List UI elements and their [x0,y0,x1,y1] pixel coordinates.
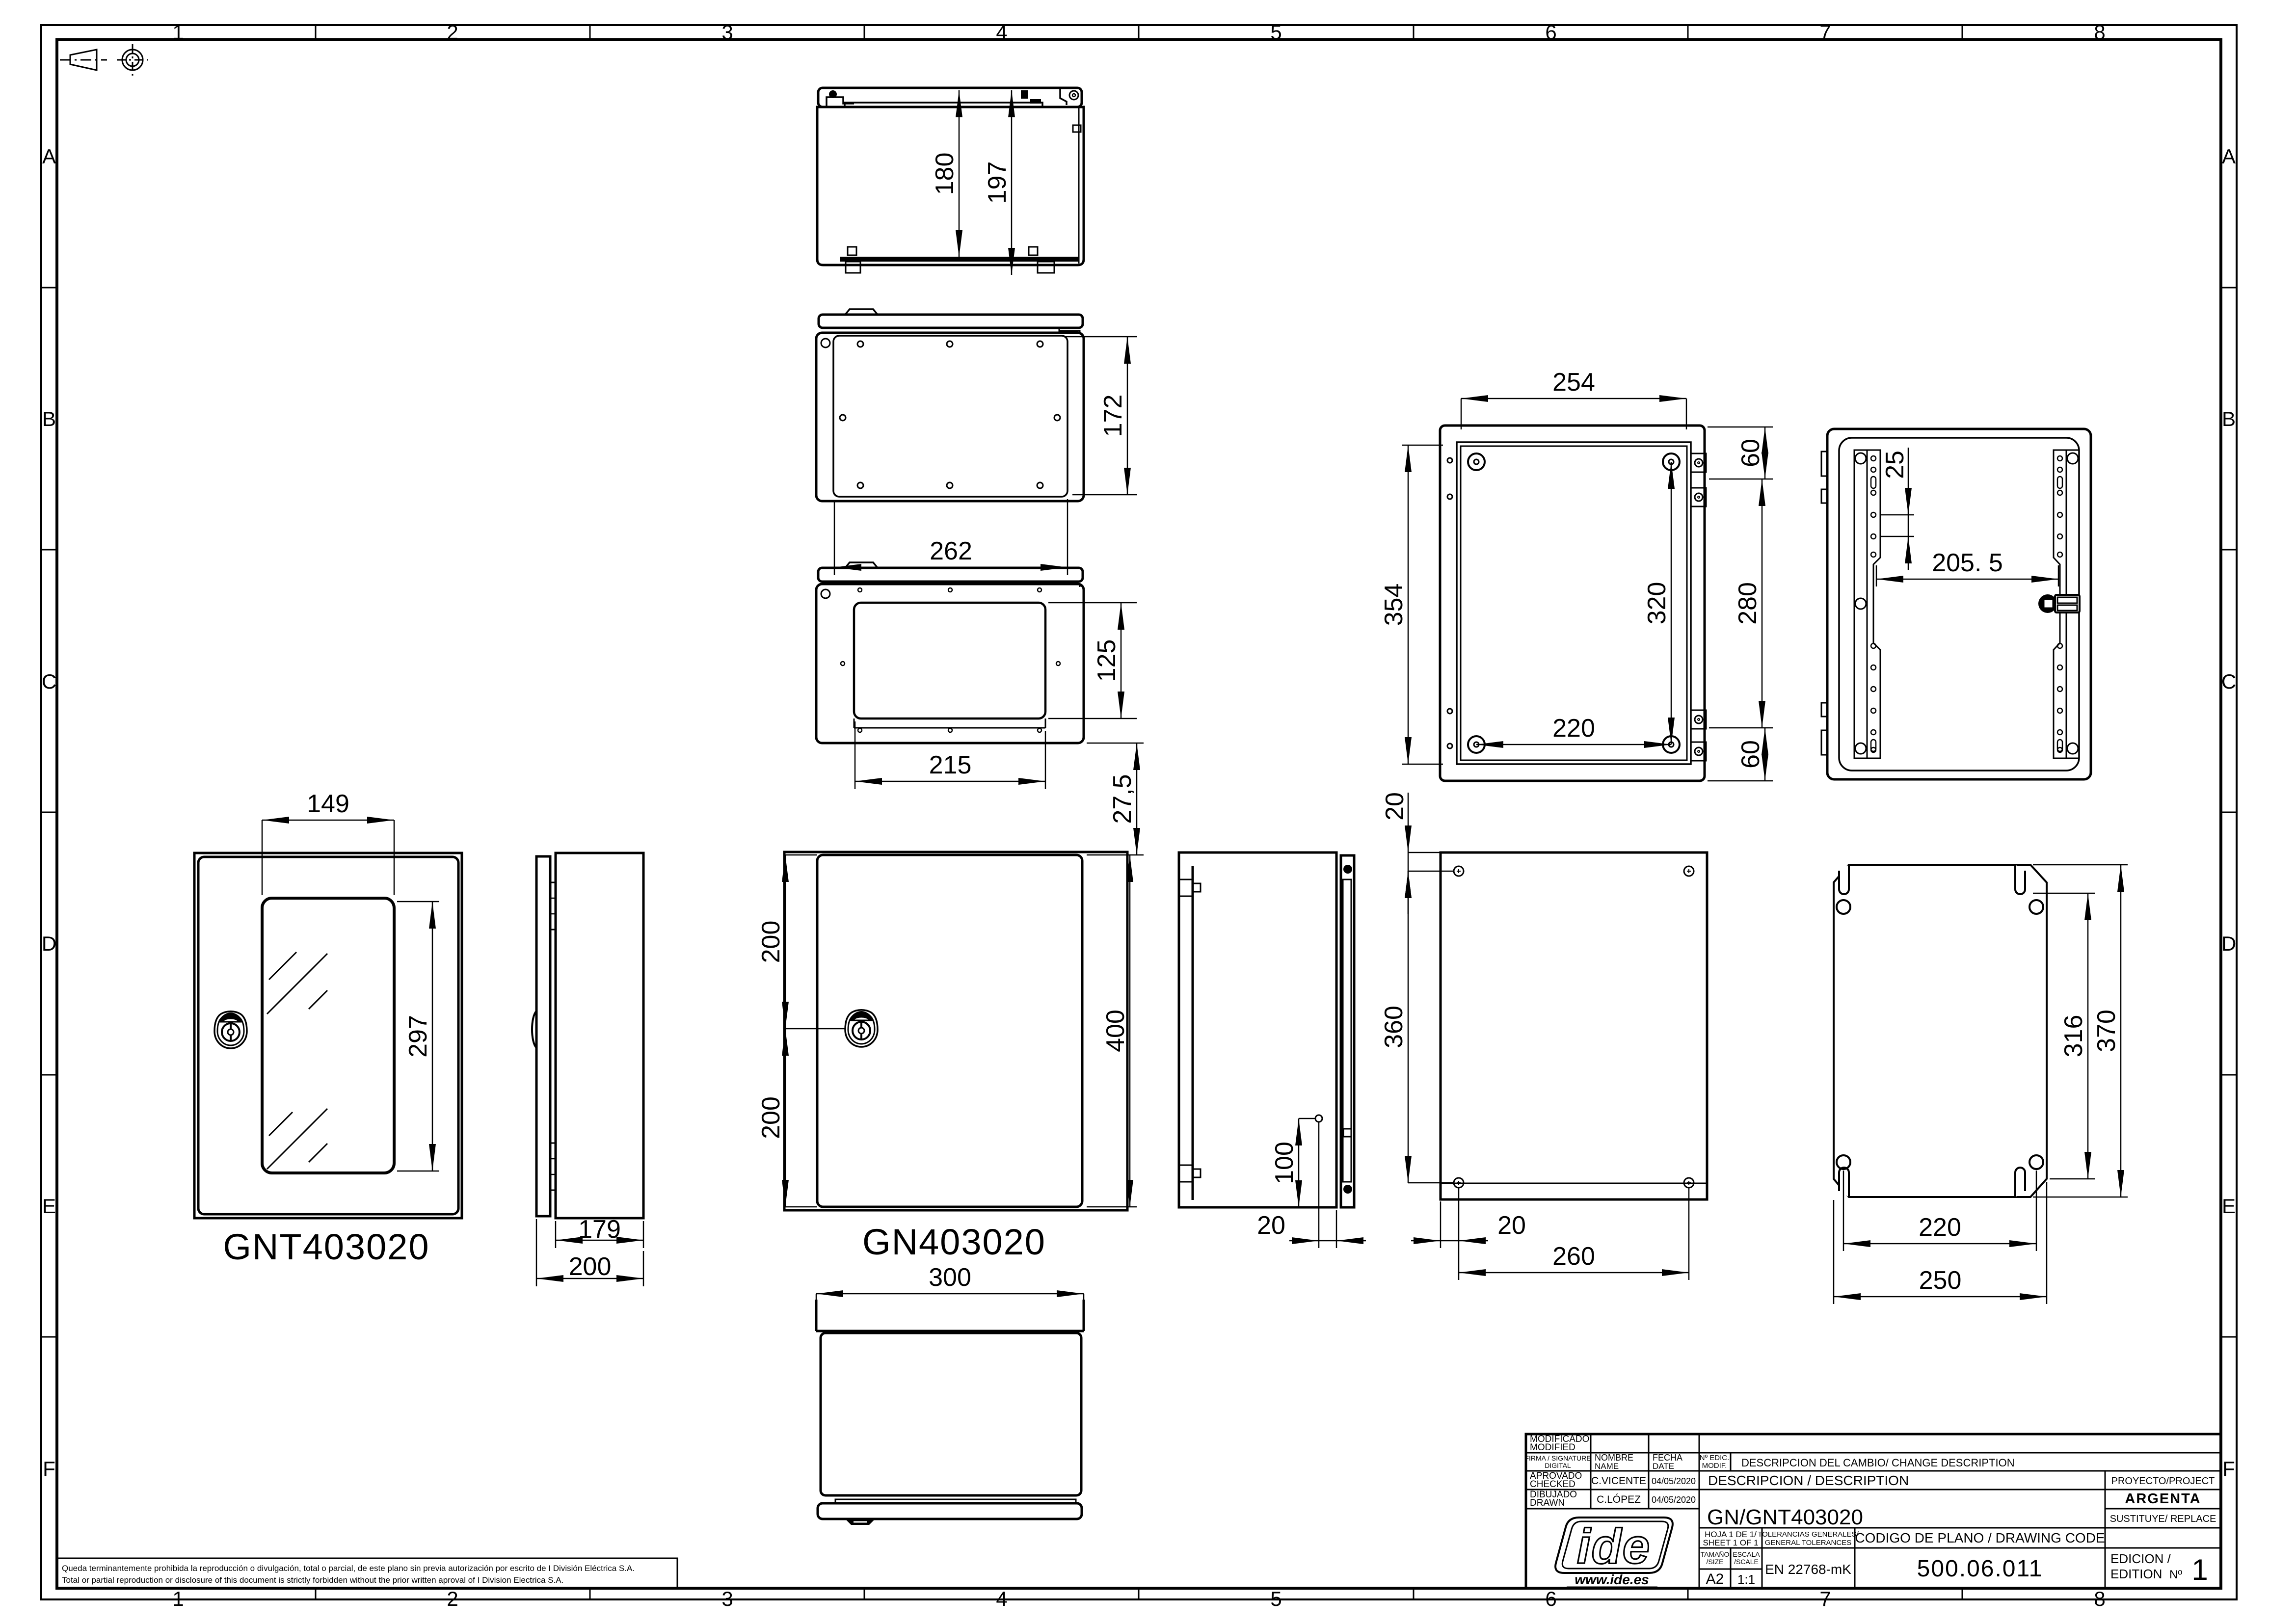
svg-text:TAMAÑO: TAMAÑO [1701,1550,1730,1558]
svg-text:F: F [43,1457,55,1480]
svg-text:www.ide.es: www.ide.es [1575,1572,1649,1587]
svg-text:60: 60 [1736,740,1765,769]
svg-text:200: 200 [757,921,785,963]
svg-text:C.VICENTE: C.VICENTE [1591,1475,1646,1487]
svg-text:DATE: DATE [1653,1462,1674,1471]
svg-text:60: 60 [1736,439,1765,467]
svg-text:100: 100 [1270,1142,1299,1184]
svg-text:MODIF.: MODIF. [1702,1462,1727,1470]
svg-text:250: 250 [1919,1266,1962,1295]
svg-text:3: 3 [721,1587,733,1610]
svg-text:7: 7 [1819,1587,1831,1610]
svg-text:GN403020: GN403020 [862,1222,1046,1262]
svg-text:200: 200 [569,1252,612,1281]
svg-text:DESCRIPCION DEL CAMBIO/ CHANG: DESCRIPCION DEL CAMBIO/ CHANGE DESCRIPTI… [1741,1457,2015,1469]
svg-text:197: 197 [983,161,1012,204]
svg-text:FIRMA / SIGNATURE: FIRMA / SIGNATURE [1524,1454,1591,1462]
svg-text:215: 215 [929,751,972,779]
svg-text:400: 400 [1101,1010,1130,1052]
svg-text:TOLERANCIAS GENERALES/: TOLERANCIAS GENERALES/ [1758,1530,1859,1539]
svg-text:B: B [42,407,56,430]
svg-text:GN/GNT403020: GN/GNT403020 [1707,1505,1863,1529]
svg-text:A: A [2222,145,2236,168]
svg-text:360: 360 [1380,1006,1408,1048]
svg-text:200: 200 [757,1096,785,1139]
svg-text:FECHA: FECHA [1653,1453,1682,1463]
svg-text:20: 20 [1497,1211,1526,1240]
svg-text:179: 179 [578,1215,621,1244]
svg-text:220: 220 [1919,1213,1961,1242]
svg-text:B: B [2222,407,2236,430]
svg-text:297: 297 [404,1015,432,1058]
svg-text:1: 1 [2191,1553,2208,1586]
svg-text:220: 220 [1552,714,1595,743]
svg-text:262: 262 [930,537,972,565]
svg-text:20: 20 [1381,792,1409,821]
svg-text:Nº: Nº [2169,1568,2182,1581]
svg-text:PROYECTO/PROJECT: PROYECTO/PROJECT [2111,1476,2215,1487]
svg-text:6: 6 [1545,21,1556,44]
svg-text:ide: ide [1577,1519,1651,1574]
svg-text:F: F [2222,1457,2235,1480]
svg-text:1: 1 [172,21,184,44]
svg-text:D: D [42,932,56,955]
svg-text:25: 25 [1881,451,1909,479]
svg-text:DESCRIPCION / DESCRIPTION: DESCRIPCION / DESCRIPTION [1708,1473,1909,1488]
svg-text:300: 300 [929,1263,971,1292]
svg-text:180: 180 [931,153,959,195]
svg-text:4: 4 [996,21,1007,44]
svg-text:EN 22768-mK: EN 22768-mK [1765,1562,1851,1577]
svg-text:GENERAL TOLERANCES: GENERAL TOLERANCES [1765,1539,1851,1547]
svg-text:D: D [2221,932,2236,955]
svg-text:125: 125 [1093,639,1121,682]
svg-text:C: C [42,670,56,693]
svg-text:2: 2 [447,21,458,44]
svg-text:6: 6 [1545,1587,1556,1610]
svg-text:EDICION /: EDICION / [2110,1551,2171,1566]
svg-text:CHECKED: CHECKED [1530,1479,1575,1490]
svg-text:CODIGO DE PLANO / DRAWING CODE: CODIGO DE PLANO / DRAWING CODE [1855,1530,2105,1545]
svg-text:/SIZE: /SIZE [1706,1558,1723,1566]
svg-text:MODIFIED: MODIFIED [1530,1442,1575,1453]
svg-text:SUSTITUYE/ REPLACE: SUSTITUYE/ REPLACE [2110,1514,2216,1524]
svg-text:5: 5 [1270,1587,1281,1610]
svg-text:3: 3 [721,21,733,44]
svg-text:7: 7 [1819,21,1831,44]
svg-text:316: 316 [2059,1015,2088,1058]
svg-text:SHEET 1 OF 1: SHEET 1 OF 1 [1703,1538,1758,1547]
svg-text:NAME: NAME [1595,1462,1619,1471]
svg-text:2: 2 [447,1587,458,1610]
svg-text:NOMBRE: NOMBRE [1595,1453,1633,1463]
svg-text:ARGENTA: ARGENTA [2125,1491,2201,1507]
svg-text:260: 260 [1552,1242,1595,1271]
svg-text:E: E [42,1195,56,1218]
svg-text:320: 320 [1643,582,1671,625]
svg-text:ESCALA: ESCALA [1733,1550,1760,1558]
svg-text:149: 149 [307,790,349,818]
svg-text:27,5: 27,5 [1108,774,1137,824]
svg-text:8: 8 [2094,21,2105,44]
svg-text:Total or partial reproduction: Total or partial reproduction or disclos… [62,1575,563,1585]
svg-text:A: A [42,145,56,168]
svg-text:GNT403020: GNT403020 [223,1226,429,1267]
svg-text:5: 5 [1270,21,1281,44]
svg-text:8: 8 [2094,1587,2105,1610]
svg-text:1: 1 [172,1587,184,1610]
svg-text:A2: A2 [1706,1571,1724,1587]
svg-text:4: 4 [996,1587,1007,1610]
svg-text:/SCALE: /SCALE [1734,1558,1759,1566]
svg-text:EDITION: EDITION [2110,1567,2162,1581]
svg-text:04/05/2020: 04/05/2020 [1652,1476,1696,1486]
svg-text:370: 370 [2092,1010,2121,1052]
svg-text:254: 254 [1552,368,1595,397]
svg-text:Queda terminantemente prohibid: Queda terminantemente prohibida la repro… [62,1564,635,1573]
svg-text:205. 5: 205. 5 [1932,549,2003,577]
svg-text:DRAWN: DRAWN [1530,1498,1565,1508]
svg-text:E: E [2222,1195,2236,1218]
svg-text:20: 20 [1257,1211,1285,1240]
svg-text:354: 354 [1380,584,1408,626]
svg-text:500.06.011: 500.06.011 [1917,1556,2043,1582]
svg-text:1:1: 1:1 [1737,1572,1755,1587]
svg-text:172: 172 [1099,395,1127,437]
svg-text:DIGITAL: DIGITAL [1545,1462,1571,1469]
svg-text:C.LÓPEZ: C.LÓPEZ [1597,1494,1641,1505]
svg-text:280: 280 [1734,582,1762,625]
svg-text:04/05/2020: 04/05/2020 [1652,1495,1696,1505]
svg-text:Nº EDIC.: Nº EDIC. [1700,1454,1729,1462]
svg-text:C: C [2221,670,2236,693]
